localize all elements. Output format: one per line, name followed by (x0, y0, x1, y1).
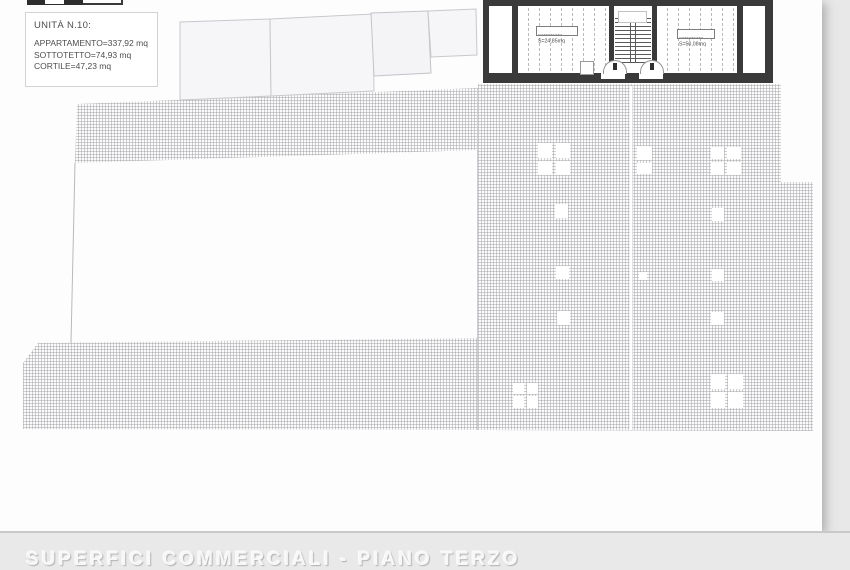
skylight (557, 311, 570, 325)
stair-landing-outline (618, 11, 647, 23)
drawing-sheet: UNITÀ N.10: APPARTAMENTO=337,92 mq SOTTO… (0, 0, 822, 531)
skylight (712, 269, 724, 281)
skylight (513, 396, 524, 408)
skylight (711, 312, 724, 325)
unit-info-lines: APPARTAMENTO=337,92 mq SOTTOTETTO=74,93 … (34, 38, 148, 73)
skylight (527, 383, 538, 394)
stair-stringer (630, 18, 631, 63)
unit-line-sottotetto: SOTTOTETTO=74,93 mq (34, 50, 148, 62)
skylight (712, 208, 724, 221)
skylight (728, 392, 743, 408)
unit-title: UNITÀ N.10: (34, 20, 91, 31)
skylight (711, 162, 724, 175)
scale-bar-segment (27, 0, 44, 5)
left-room-tag: SOTTOTETTO (538, 34, 562, 36)
footer-caption: SUPERFICI COMMERCIALI - PIANO TERZO (26, 549, 521, 570)
attic-room-narrow-left (489, 6, 512, 73)
stair-stringer (635, 18, 636, 63)
footer-band: SUPERFICI COMMERCIALI - PIANO TERZO (0, 531, 850, 570)
skylight (513, 383, 524, 394)
roof-hatch-right (478, 84, 813, 431)
skylight (527, 396, 538, 408)
skylight (637, 163, 652, 174)
unit-line-appartamento: APPARTAMENTO=337,92 mq (34, 38, 148, 50)
skylight (556, 161, 570, 175)
skylight (728, 374, 743, 389)
scale-bar-icon (27, 0, 123, 6)
skylight (711, 147, 724, 159)
right-room-tag-box: SOTTOTETTO (677, 29, 715, 39)
skylight (711, 392, 725, 408)
scanned-floorplan-sheet: UNITÀ N.10: APPARTAMENTO=337,92 mq SOTTO… (0, 0, 850, 570)
skylight (556, 143, 570, 158)
unit-info-box: UNITÀ N.10: APPARTAMENTO=337,92 mq SOTTO… (25, 12, 158, 87)
skylight (538, 161, 552, 175)
scale-bar-line (83, 3, 123, 5)
skylight (711, 374, 725, 389)
roof-hatch-left-bottom (23, 338, 478, 431)
skylight (727, 162, 741, 175)
skylight (555, 204, 568, 218)
scale-bar-segment (65, 0, 83, 5)
left-room-tag-box: SOTTOTETTO (536, 26, 578, 36)
scale-bar-tick (121, 0, 123, 5)
skylight (639, 272, 647, 280)
unit-line-cortile: CORTILE=47,23 mq (34, 61, 148, 73)
door-leaf (650, 63, 654, 70)
roof-hatch-left-top (75, 88, 478, 164)
right-room-tag: SOTTOTETTO (679, 37, 703, 39)
attic-room-right (657, 6, 737, 73)
skylight (538, 143, 552, 158)
chimney-outline (580, 61, 594, 75)
scale-bar-segment (44, 0, 65, 5)
skylight (727, 147, 741, 159)
left-room-area: S=24,85mq (538, 38, 565, 44)
stair-treads (615, 18, 651, 63)
right-room-area: S=50,08mq (679, 41, 706, 47)
door-leaf (613, 63, 617, 70)
skylight (637, 146, 652, 160)
attic-room-narrow-right (743, 6, 765, 73)
skylight (556, 266, 569, 279)
